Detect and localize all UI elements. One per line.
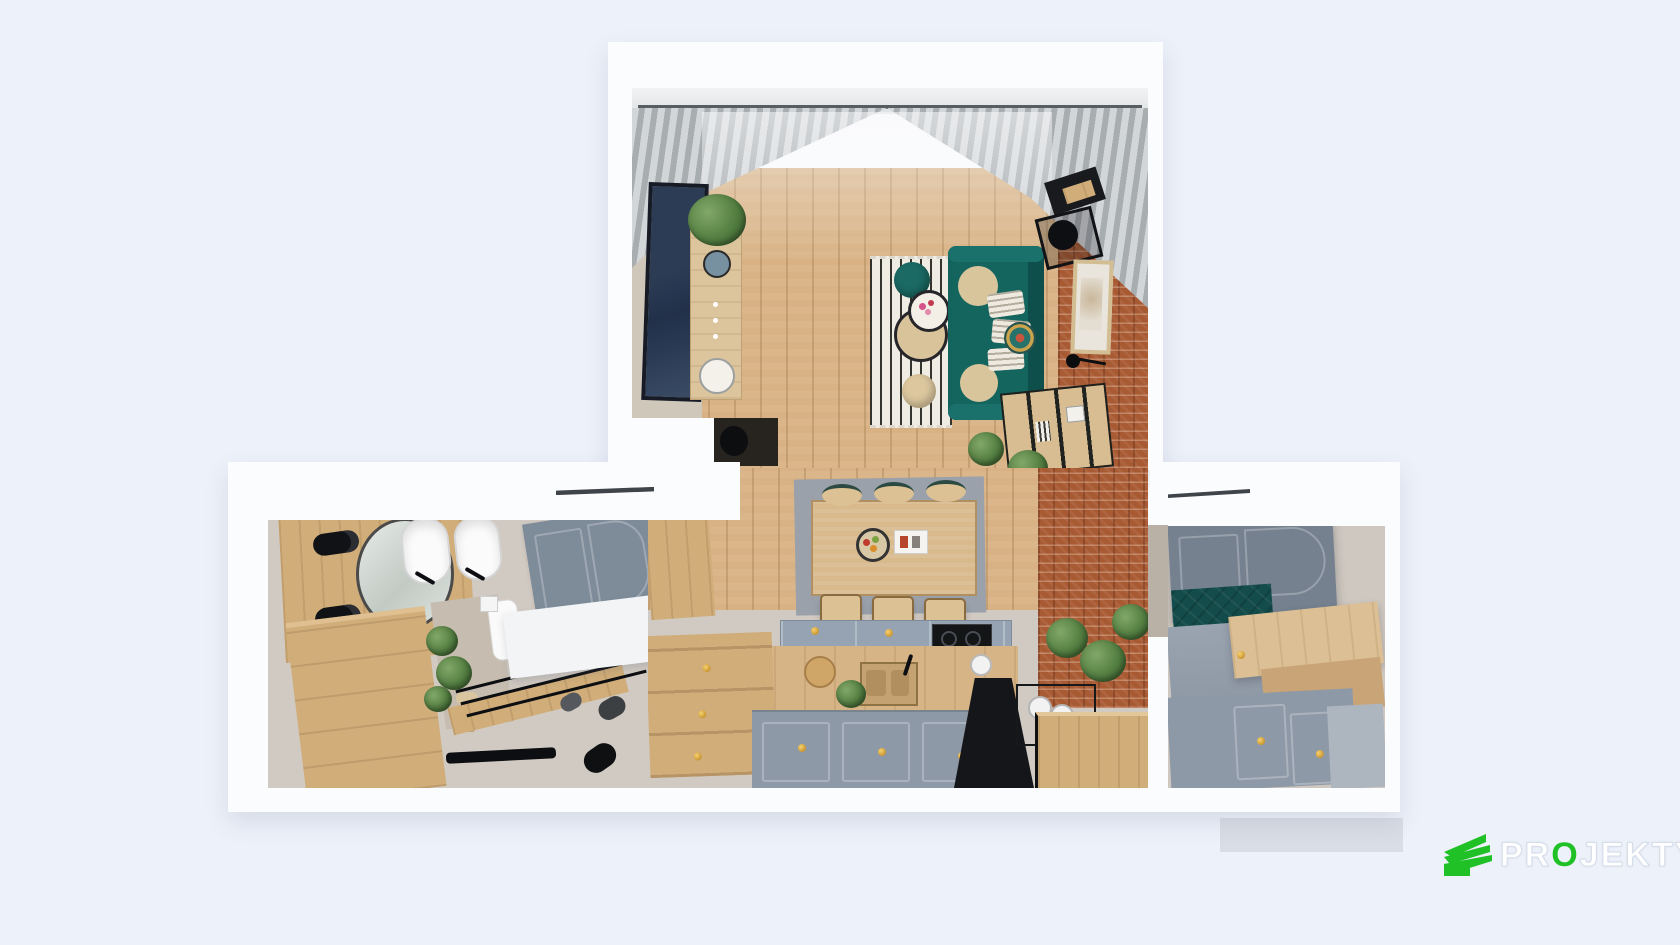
logo-letter-o: O: [1551, 836, 1579, 874]
cabinet-door: [762, 722, 830, 782]
kitchen-entry-divider-wall: [1148, 637, 1168, 788]
wall-sconce: [1066, 354, 1080, 368]
coffee-table-small: [908, 290, 950, 332]
sink-basin: [866, 670, 886, 696]
console-shelf: [690, 223, 742, 400]
logo: PROJEKTYKA: [1440, 828, 1670, 884]
cabinet-knob: [811, 627, 819, 635]
half-wall-plant: [1080, 640, 1126, 682]
flowers: [925, 309, 931, 315]
corner-desk: [1034, 172, 1106, 264]
terrace-slab: [1220, 818, 1403, 852]
floor-plant: [968, 432, 1004, 466]
projektyka-building-icon: [1440, 830, 1496, 880]
pantry-knob: [694, 752, 702, 760]
decor-plate-white: [699, 358, 735, 394]
decor-plate-blue: [703, 250, 731, 278]
picture-image: [1079, 278, 1103, 331]
cabinet-knob: [878, 748, 886, 756]
bathroom: [268, 518, 648, 788]
entry-left-wall-upper: [1148, 525, 1168, 637]
decor-dot: [713, 334, 718, 339]
beige-pouf: [902, 374, 936, 408]
counter-plant: [836, 680, 866, 708]
cutting-board: [804, 656, 836, 688]
burner: [941, 631, 957, 647]
fruit: [863, 539, 870, 546]
toilet-paper-holder: [480, 596, 498, 612]
dining-chair: [822, 484, 862, 506]
logo-text-post: JEKTYKA: [1580, 836, 1680, 874]
desk-chair: [1048, 220, 1078, 250]
tower-bottom-left-stub: [608, 418, 714, 470]
serving-tray: [894, 530, 928, 554]
door-panel: [587, 518, 648, 608]
burner: [965, 631, 981, 647]
striped-pillow: [987, 290, 1026, 319]
living-room: [632, 88, 1148, 468]
floor-plan-render: L PROJEKTYKA: [0, 0, 1680, 945]
potted-plant: [688, 194, 746, 246]
kitchen-bench: [1035, 712, 1148, 788]
decor-box: [1066, 405, 1086, 423]
kitchen-sink: [860, 662, 918, 706]
mandala-pillow: [1004, 322, 1036, 354]
fruit: [872, 536, 879, 543]
books: [1035, 421, 1051, 442]
sheer-curtain: [702, 112, 1052, 262]
pantry-knob: [703, 664, 711, 672]
jar: [912, 536, 920, 548]
band-top-wall-left: [228, 462, 740, 520]
pantry-knob: [698, 710, 706, 718]
sofa-armrest-top: [948, 246, 1044, 262]
kitchen-entry-wood-wall: [648, 516, 715, 620]
fruit-bowl: [856, 528, 890, 562]
flowers: [928, 300, 934, 306]
half-wall-plant: [1112, 604, 1148, 640]
console-chair: [718, 424, 751, 458]
plate-stack: [970, 654, 992, 676]
dining-chair: [926, 480, 966, 502]
wood-cabinet-knob: [1237, 651, 1245, 659]
logo-text-pre: PR: [1500, 836, 1551, 874]
entry-hall: L: [1167, 525, 1385, 788]
jar: [900, 536, 908, 548]
bathroom-plant: [436, 656, 472, 690]
cabinet-knob: [798, 744, 806, 752]
bathroom-plant: [426, 626, 458, 656]
cabinet-knob: [885, 629, 893, 637]
decor-dot: [713, 318, 718, 323]
decor-dot: [713, 302, 718, 307]
entry-end-panel: [1327, 704, 1385, 788]
dining-chair: [874, 482, 914, 504]
framed-picture: [1070, 259, 1113, 354]
fruit: [870, 545, 877, 552]
cabinet-door: [842, 722, 910, 782]
vanity-cabinet: [285, 606, 446, 788]
logo-wordmark: PROJEKTYKA: [1500, 836, 1680, 875]
